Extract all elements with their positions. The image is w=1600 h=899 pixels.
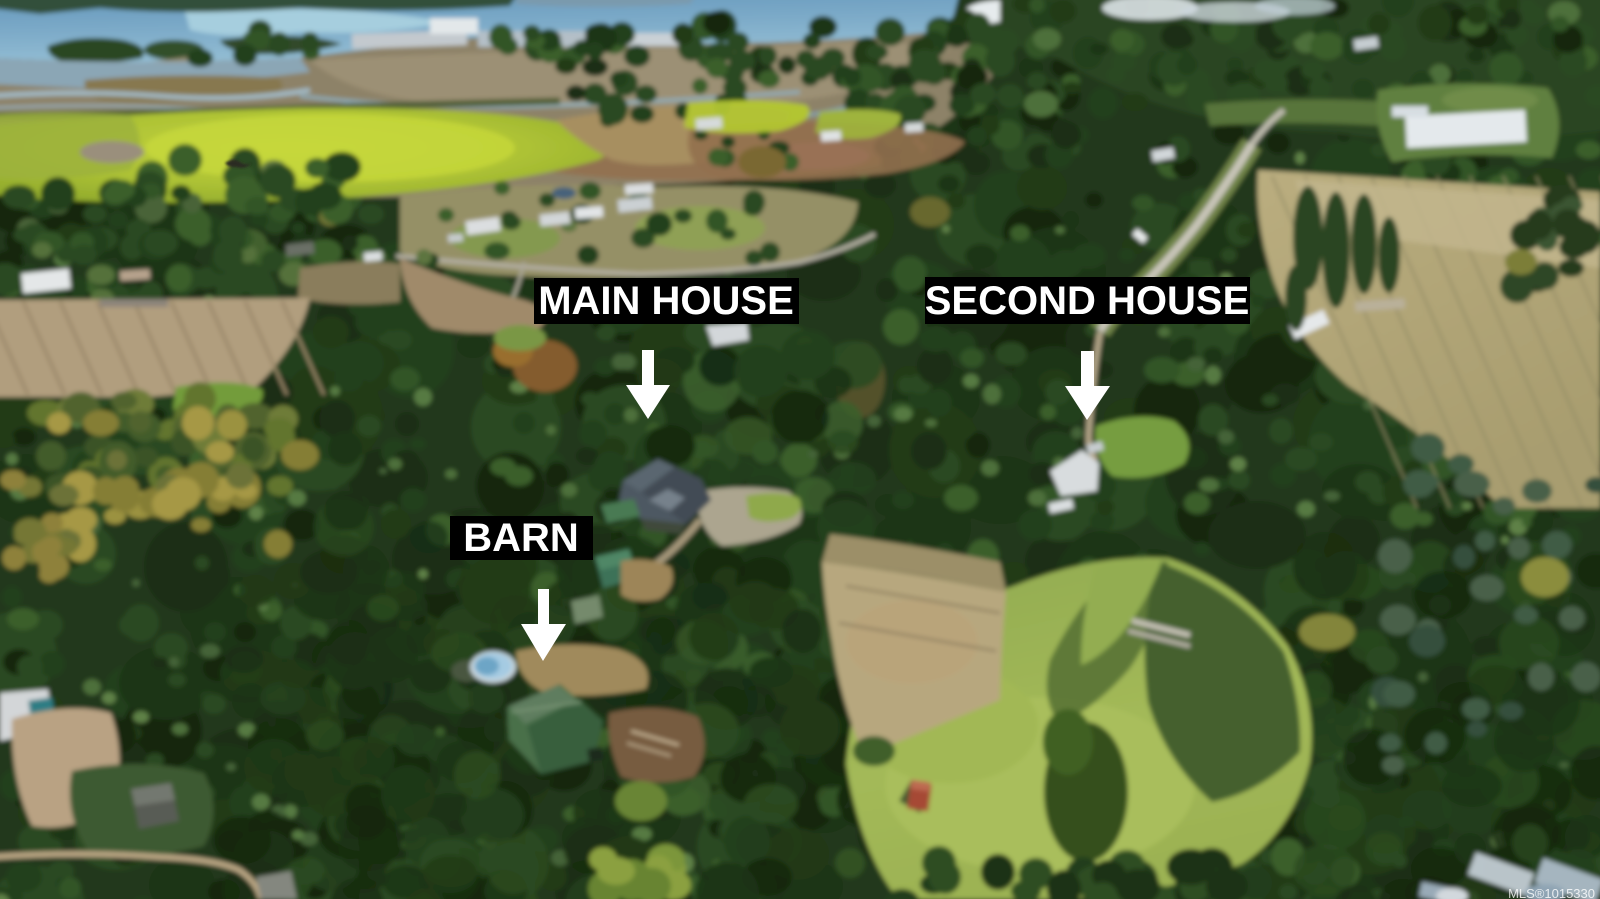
- svg-text:BARN: BARN: [463, 516, 579, 560]
- svg-text:SECOND HOUSE: SECOND HOUSE: [925, 279, 1250, 323]
- svg-text:MAIN HOUSE: MAIN HOUSE: [538, 279, 794, 323]
- svg-text:MLS®1015330: MLS®1015330: [1508, 886, 1595, 899]
